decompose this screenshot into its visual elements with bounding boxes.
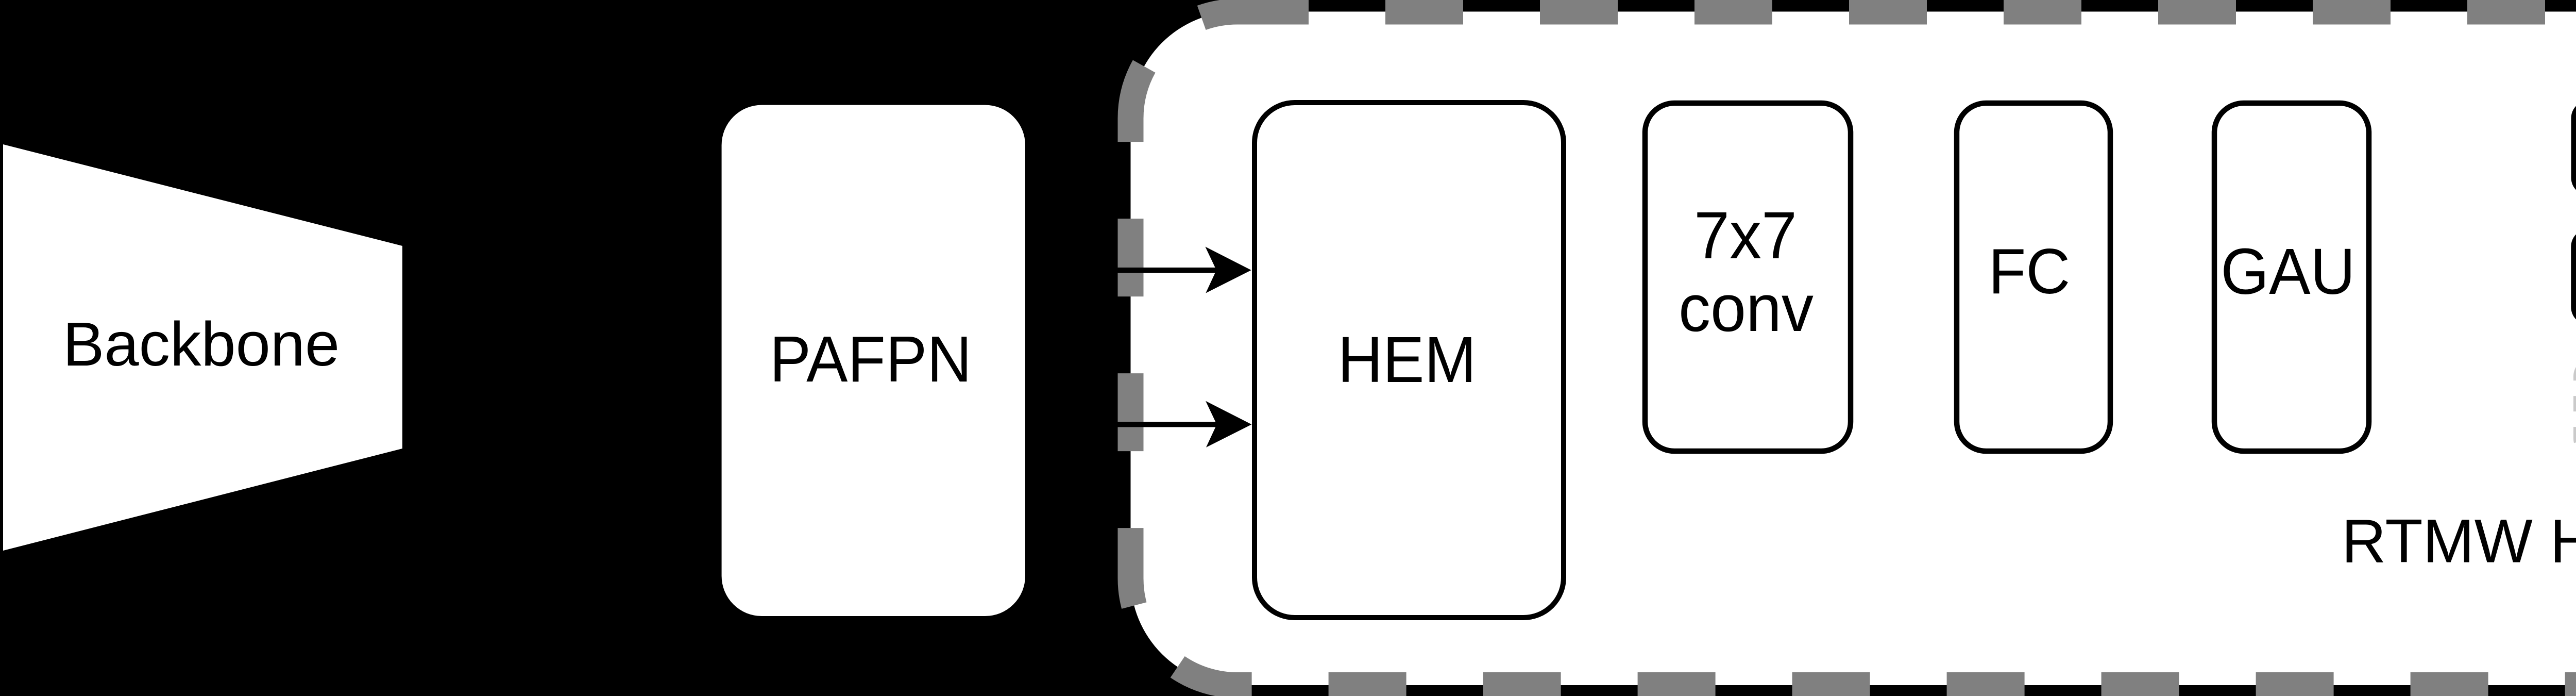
svg-text:Backbone: Backbone [63, 309, 340, 379]
svg-text:HEM: HEM [1338, 324, 1477, 396]
svg-text:conv: conv [1679, 271, 1814, 345]
svg-text:PAFPN: PAFPN [770, 324, 972, 396]
svg-text:FC: FC [1989, 236, 2071, 307]
svg-text:RTMW Head: RTMW Head [2342, 506, 2576, 575]
svg-text:7x7: 7x7 [1694, 197, 1797, 272]
svg-text:GAU: GAU [2221, 236, 2355, 308]
